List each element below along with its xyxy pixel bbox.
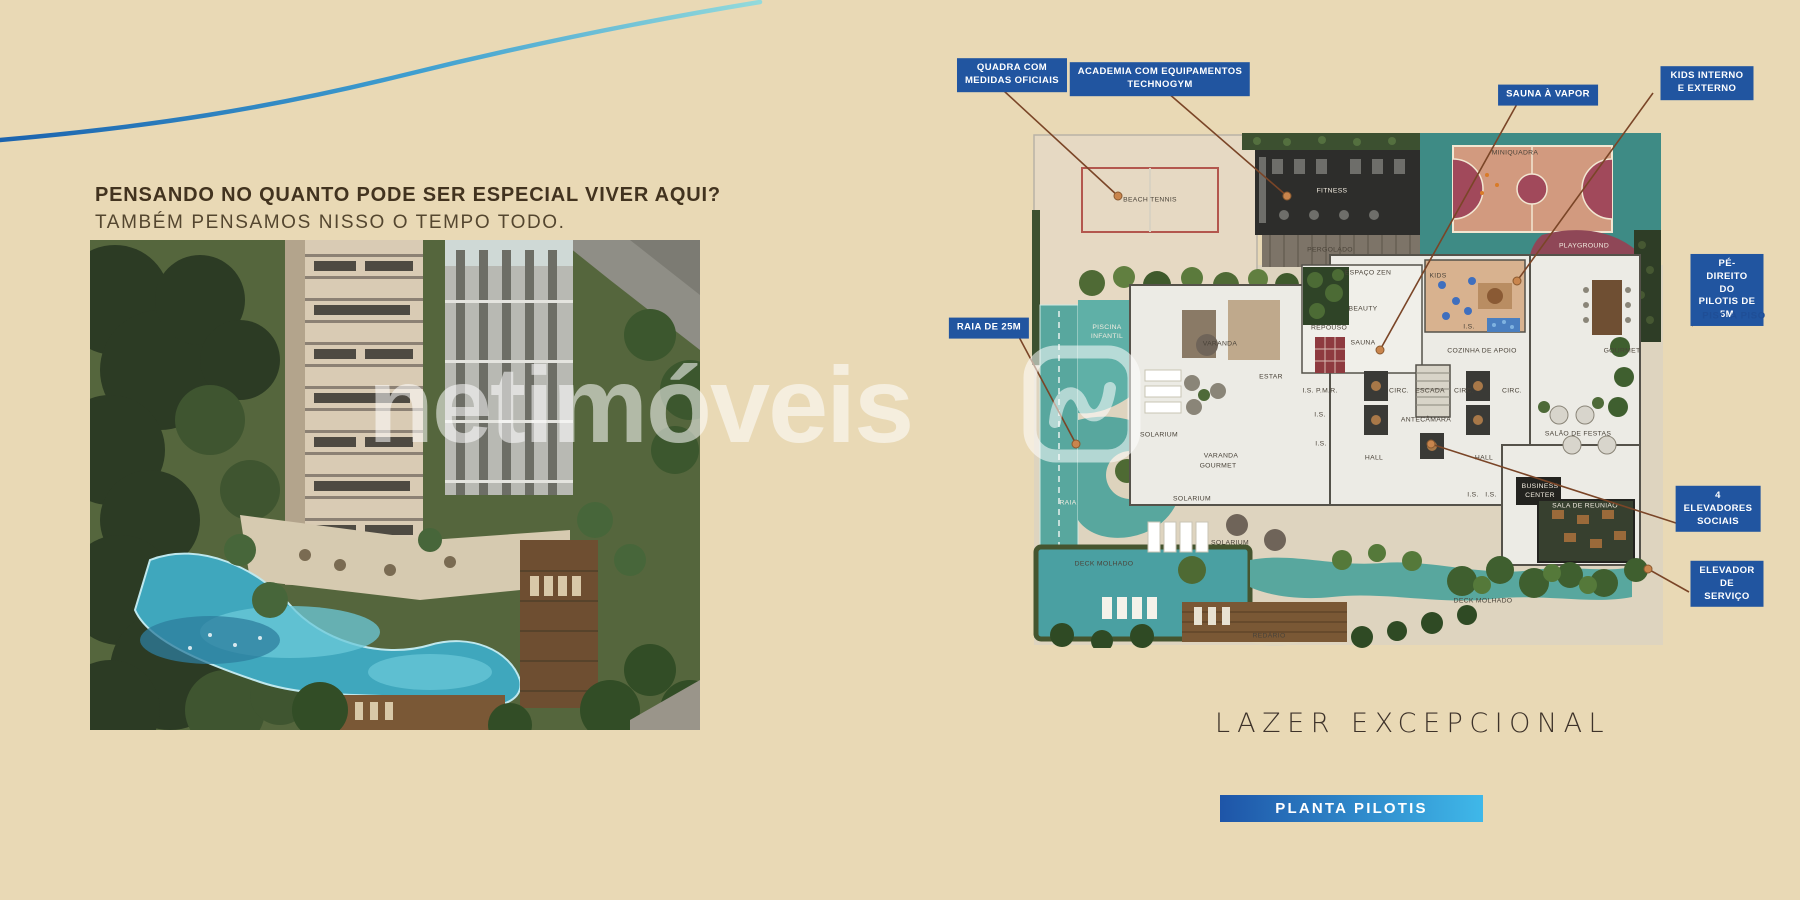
planta-pilotis-button[interactable]: PLANTA PILOTIS [1220,795,1483,822]
callout-kids-interno-externo: KIDS INTERNO E EXTERNO [1661,66,1754,100]
callout-sauna-vapor: SAUNA À VAPOR [1498,85,1598,106]
callout-academia-technogym: ACADEMIA COM EQUIPAMENTOS TECHNOGYM [1070,62,1250,96]
brochure-page: PENSANDO NO QUANTO PODE SER ESPECIAL VIV… [0,0,1800,900]
plan-caption: LAZER EXCEPCIONAL [1215,708,1610,739]
floor-plan-graphic [1032,115,1663,648]
page-subheadline: TAMBÉM PENSAMOS NISSO O TEMPO TODO. [95,212,566,234]
page-headline: PENSANDO NO QUANTO PODE SER ESPECIAL VIV… [95,184,721,207]
aerial-photo [90,240,700,730]
callout-elevadores-sociais: 4 ELEVADORES SOCIAIS [1676,486,1761,532]
callout-raia-25m: RAIA DE 25M [949,318,1029,339]
piso-a-piso-label: PISO A PISO [1702,311,1765,322]
callout-quadra-oficial: QUADRA COM MEDIDAS OFICIAIS [957,58,1067,92]
callout-elevador-servico: ELEVADOR DE SERVIÇO [1691,561,1764,607]
wave-decoration [0,0,780,170]
